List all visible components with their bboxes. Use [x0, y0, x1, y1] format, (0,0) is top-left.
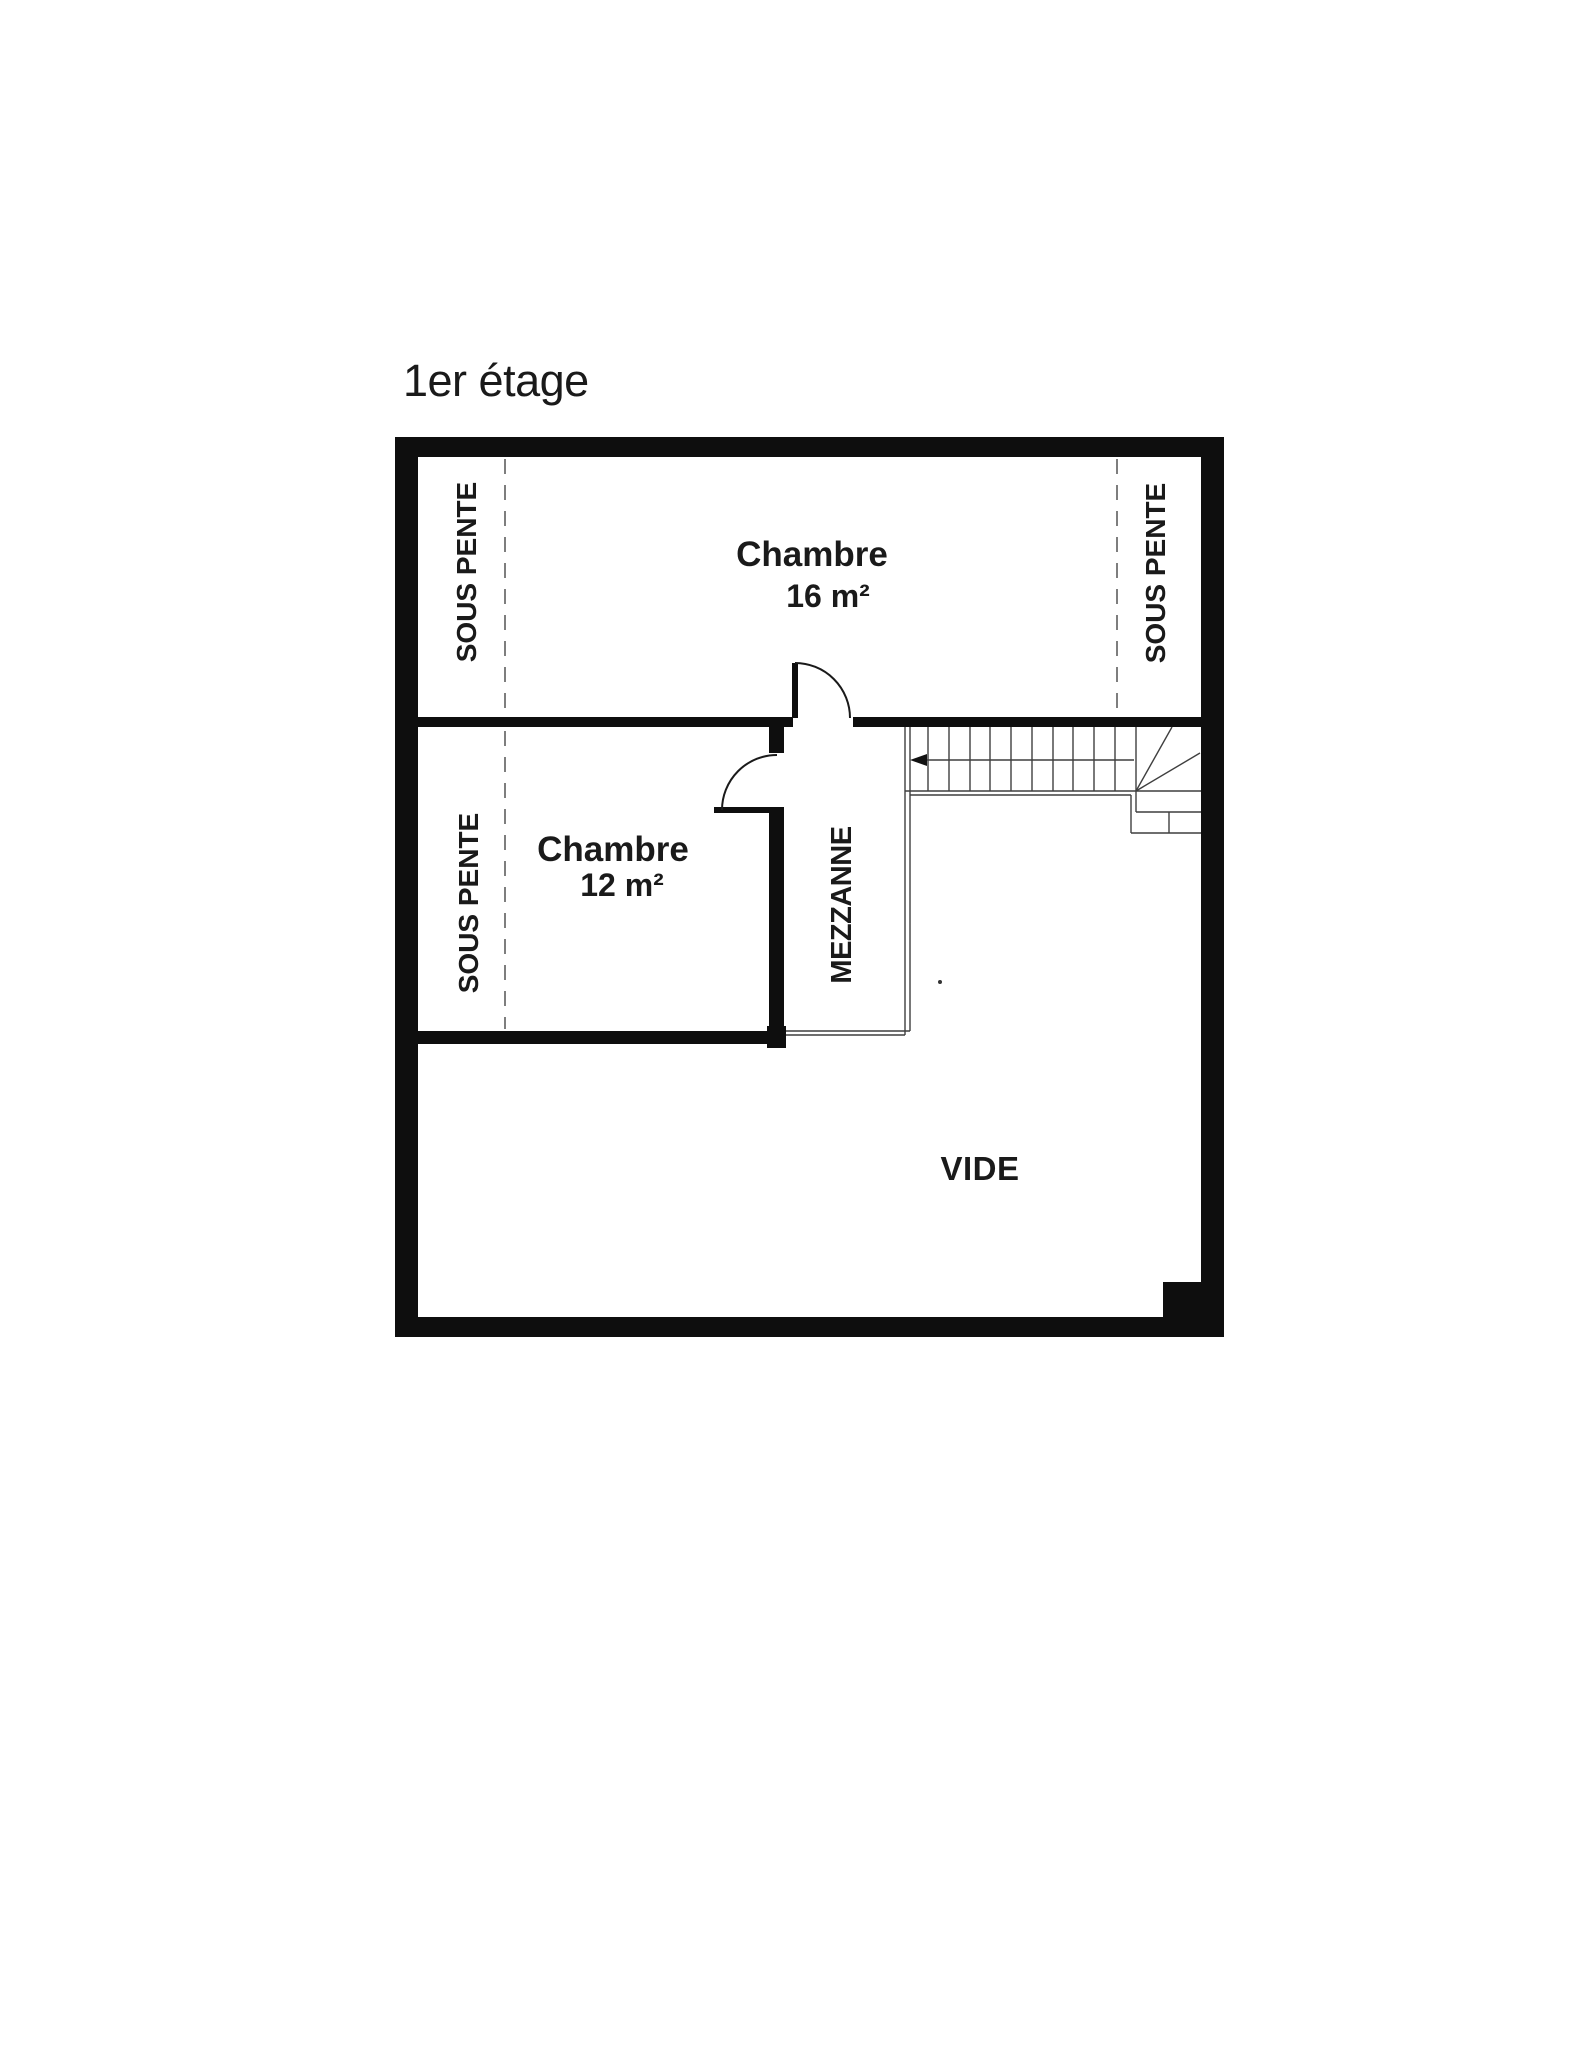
wall-left	[395, 437, 418, 1337]
wall-chambre16-south-right	[853, 717, 1201, 727]
wall-mezzanine-west-lower	[769, 807, 784, 1031]
mezzanine-label: MEZZANNE	[826, 826, 858, 983]
door-chambre16-swing-arc	[795, 663, 850, 718]
wall-chambre16-south-left	[418, 717, 793, 727]
chambre12-area: 12 m²	[580, 867, 664, 903]
floor-title: 1er étage	[403, 355, 589, 406]
print-dot	[938, 980, 942, 984]
wall-corner-notch	[1163, 1282, 1201, 1318]
wall-chambre12-south-cap	[767, 1026, 786, 1048]
stair-treads	[928, 727, 1136, 791]
interior-walls	[418, 717, 1201, 1048]
wall-mezzanine-west-upper	[769, 727, 784, 753]
staircase	[910, 727, 1201, 833]
wall-bottom	[395, 1317, 1224, 1337]
wall-right	[1201, 437, 1224, 1337]
door-chambre12-swing-arc	[722, 755, 777, 810]
sous-pente-label-left-bottom: SOUS PENTE	[453, 813, 484, 993]
floor-plan-page: 1er étage	[0, 0, 1573, 2047]
chambre12-label: Chambre	[537, 830, 689, 869]
floor-plan-drawing: 1er étage	[0, 0, 1573, 2047]
stair-winder	[1131, 727, 1201, 833]
sous-pente-label-right: SOUS PENTE	[1140, 483, 1171, 663]
door-chambre12-leaf	[714, 807, 777, 813]
chambre16-area: 16 m²	[786, 578, 870, 614]
wall-chambre12-south	[418, 1031, 769, 1044]
chambre16-label: Chambre	[736, 535, 888, 574]
wall-top	[395, 437, 1224, 457]
sous-pente-label-left-top: SOUS PENTE	[451, 482, 482, 662]
door-chambre16-leaf	[792, 663, 798, 718]
stair-direction-arrowhead	[910, 754, 927, 766]
vide-label: VIDE	[940, 1150, 1019, 1187]
